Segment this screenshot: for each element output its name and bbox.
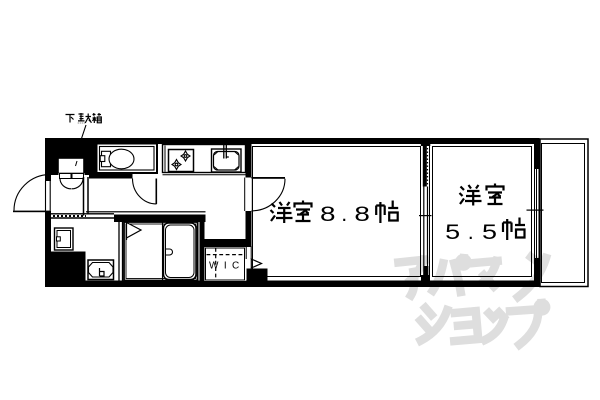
svg-text:5: 5 xyxy=(445,220,460,244)
svg-text:.: . xyxy=(468,220,474,244)
svg-text:8: 8 xyxy=(354,202,370,226)
svg-text:.: . xyxy=(341,202,347,226)
svg-text:5: 5 xyxy=(482,220,497,244)
svg-text:WIC: WIC xyxy=(209,261,245,272)
svg-text:8: 8 xyxy=(320,202,336,226)
